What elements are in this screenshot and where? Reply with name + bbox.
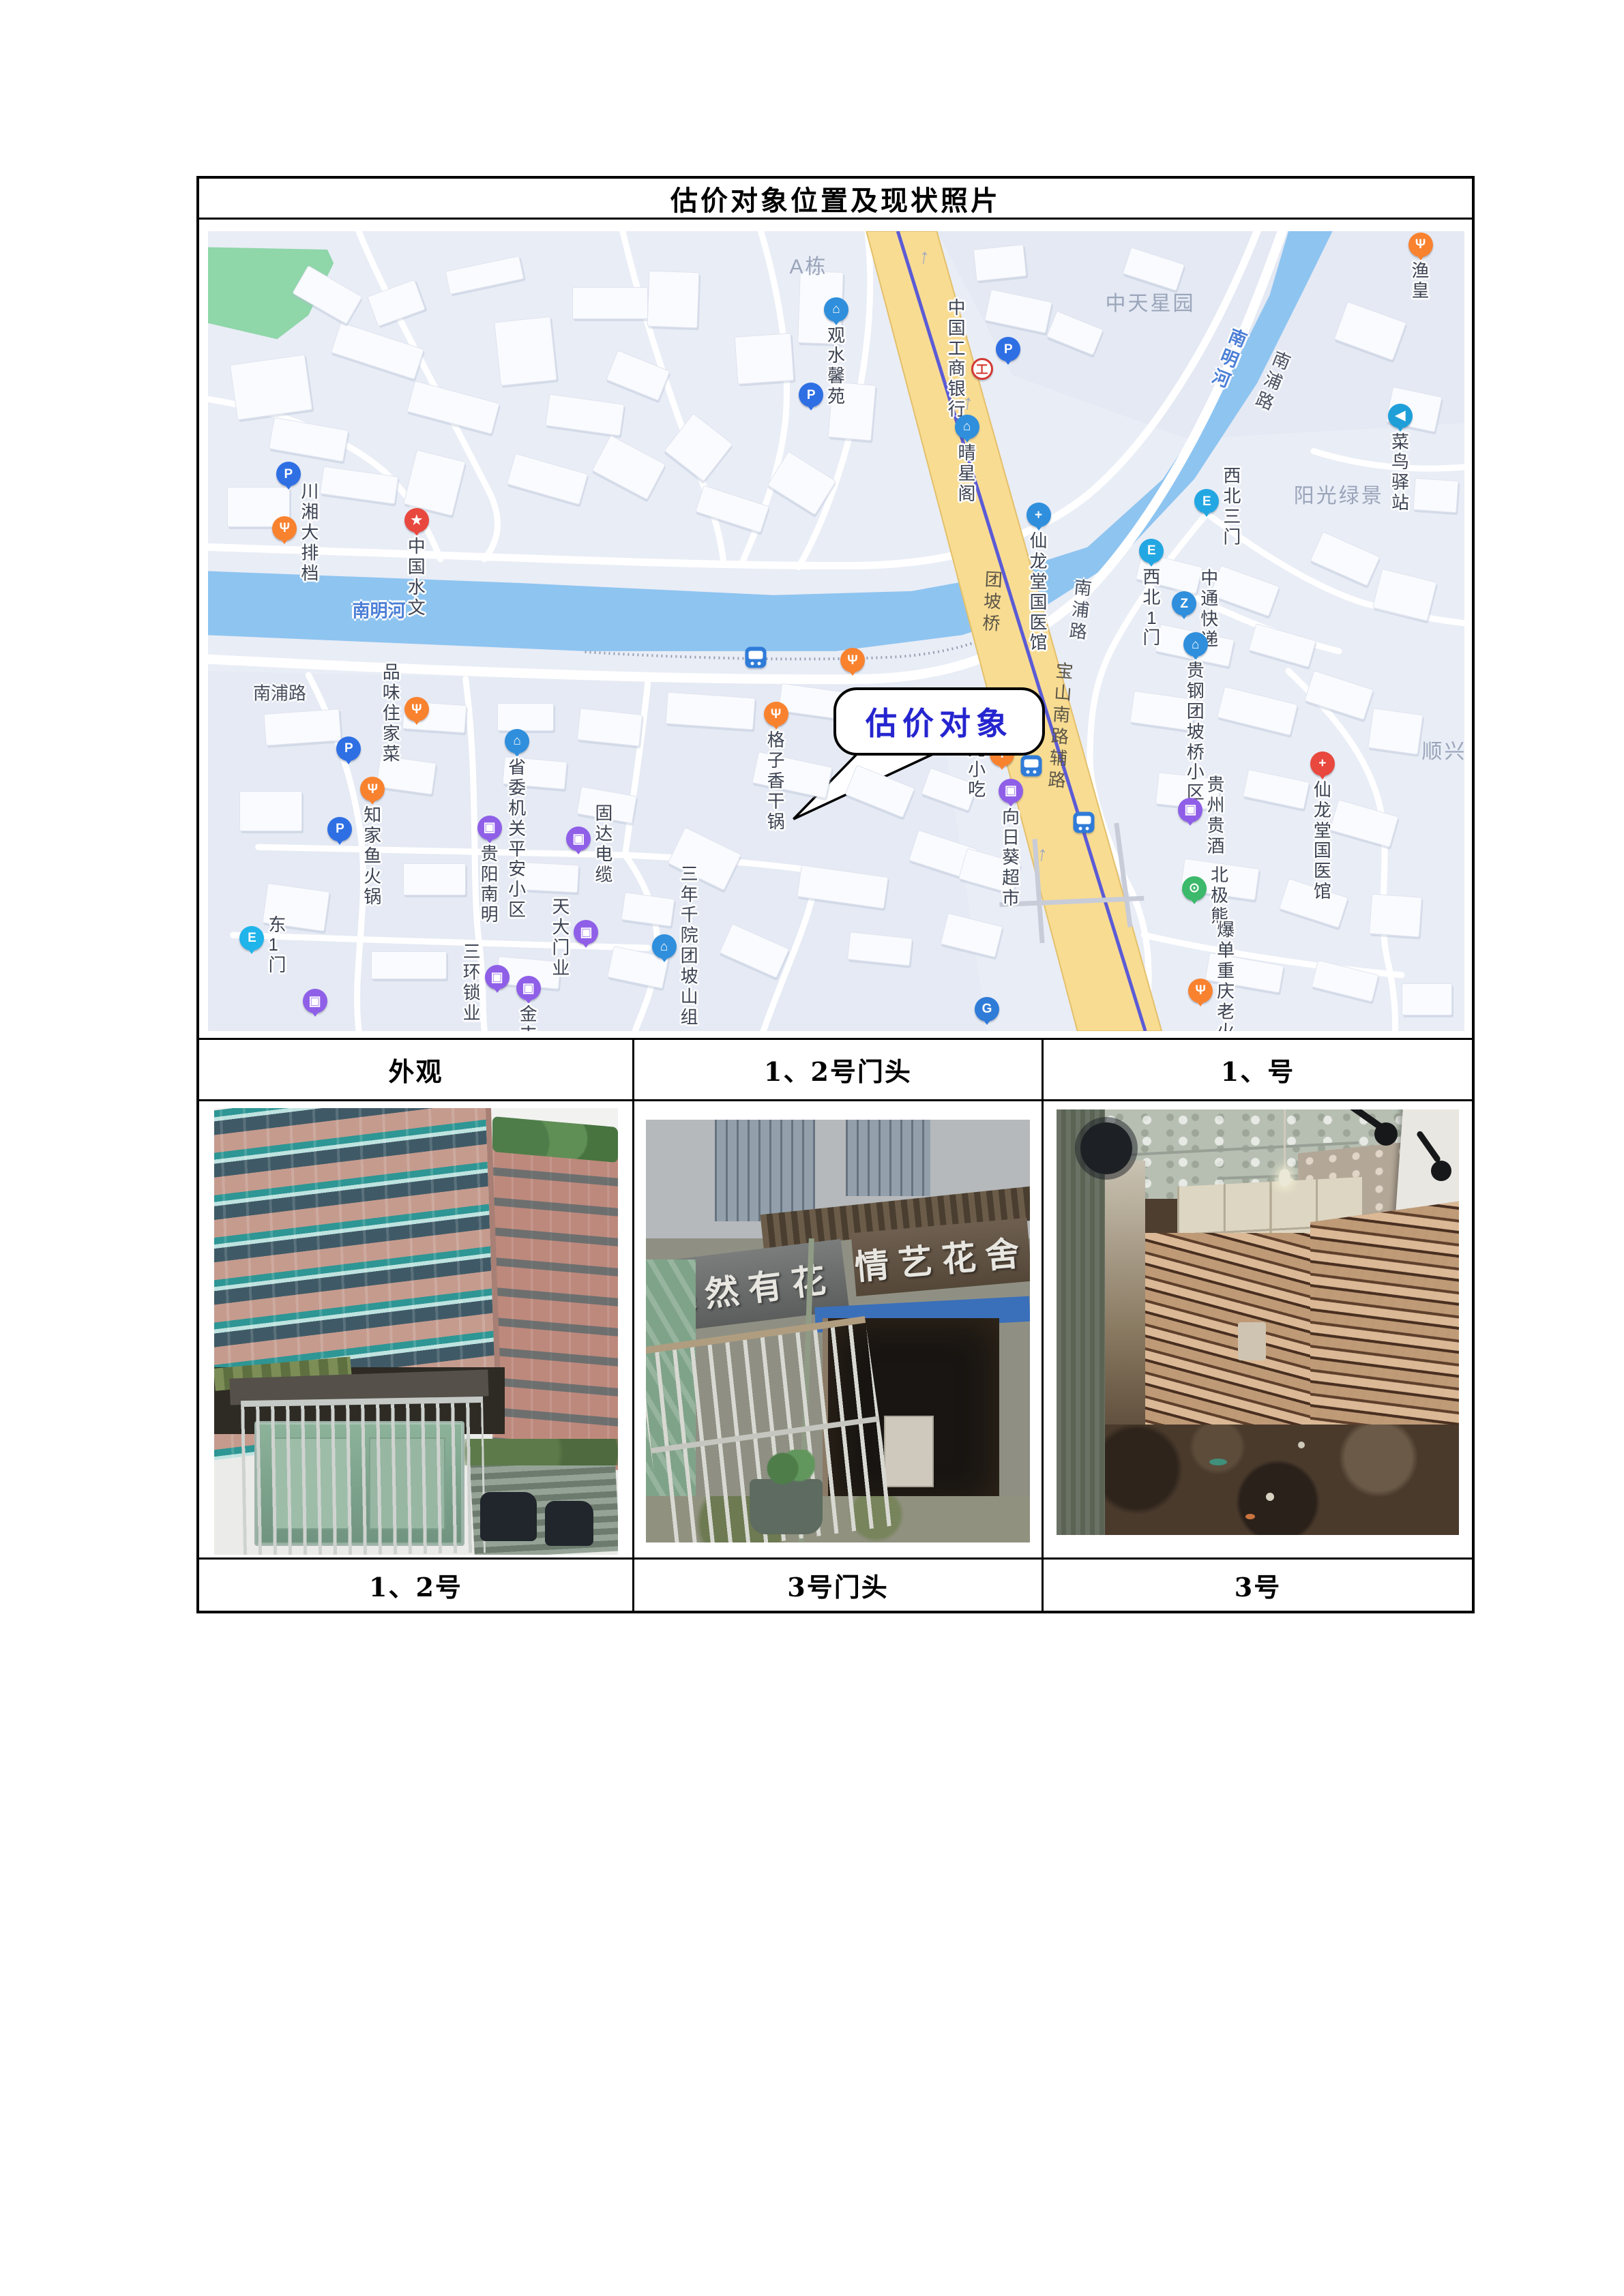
corner-wall [1105,1161,1145,1442]
dirty-floor [1057,1425,1459,1535]
marker-tail [1185,818,1196,831]
marker-tail [334,837,345,850]
marker-tail [573,847,584,860]
map-building [497,703,554,731]
building-right [492,1137,618,1472]
bus-stop-icon [1073,811,1094,833]
map-building [263,709,341,746]
caption-no12: 1、2号 [199,1560,634,1611]
marker-tail [1201,509,1212,522]
marker-tail [981,1017,992,1030]
photo-cell-interior [1044,1101,1472,1557]
map-building [239,791,302,831]
marker-tail [492,985,503,998]
header-row: 外观 1、2号门头 1、号 [199,1038,1472,1099]
map-building [1413,477,1460,512]
map-building [230,354,312,420]
header-exterior: 外观 [199,1040,634,1099]
moss [464,1439,618,1465]
header-storefront-12: 1、2号门头 [634,1040,1044,1099]
map-building [1369,893,1422,937]
map: PΨ川湘大排档★中国水文⌂观水馨苑工中国工商银行PP⌂晴星阁+仙龙堂国医馆Ψ渔皇… [208,231,1464,1031]
map-building [494,316,557,386]
marker-tail [411,717,422,730]
poi-label: 贵钢团坡桥小区 [1187,661,1205,803]
poi-label: 东1门 [268,915,286,976]
road-label: 南浦路 [253,679,306,704]
poi-label: 仙龙堂国医馆 [1314,780,1331,902]
debris [1209,1459,1227,1465]
map-building [1402,983,1452,1015]
marker-tail [1003,357,1014,370]
marker-tail [847,668,858,681]
marker-tail [996,762,1007,775]
map-cell: PΨ川湘大排档★中国水文⌂观水馨苑工中国工商银行PP⌂晴星阁+仙龙堂国医馆Ψ渔皇… [199,220,1472,1038]
caption-no3-storefront: 3号门头 [634,1560,1044,1611]
marker-tail [343,757,354,770]
metal-fence [241,1397,486,1555]
map-building [572,287,648,319]
photo-exterior [214,1108,618,1555]
photo-interior [1057,1109,1459,1535]
marker-tail [246,946,257,959]
map-building [577,708,643,746]
area-label: 顺兴 [1422,734,1464,764]
stone-wall-right [1310,1201,1459,1452]
photo-cell-exterior [199,1101,634,1557]
marker-tail [806,403,816,416]
poi-label: 固达电缆 [595,804,612,886]
poi-label: 天大门业 [552,897,570,979]
poi-label: 仙龙堂国医馆 [1030,531,1048,653]
marker-tail [310,1009,321,1022]
poi-label: 知家鱼火锅 [364,805,381,907]
map-building [403,863,466,895]
area-label: 阳光绿景 [1294,479,1384,509]
window-grille [715,1120,814,1221]
poi-label: 北极熊 [1211,865,1228,927]
subject-callout: 估价对象 [833,687,1044,756]
road-label: 团坡桥 [977,570,1006,637]
plant [761,1450,815,1488]
photo-storefront: 情艺花舍 果然有花 [646,1120,1030,1542]
marker-tail [580,940,591,953]
poi-label: 晴星阁 [958,443,976,505]
debris [1266,1493,1274,1501]
poi-label: 贵阳南明 [481,844,499,926]
poi-label: 中国水文 [408,537,426,618]
poi-label: 西北1门 [1142,567,1160,649]
area-label: A栋 [789,250,827,280]
poi-label: 格子香干锅 [767,730,785,832]
wall-patch [1238,1322,1266,1360]
marker-tail [1189,897,1200,910]
poi-label: 西北三门 [1223,466,1241,548]
exhaust-fan [1080,1122,1132,1174]
track-light [1431,1161,1451,1181]
bulb-cord [1284,1109,1286,1174]
marker-tail [283,482,294,495]
map-building [647,270,698,328]
poi-label: 观水馨苑 [827,326,845,408]
poi-label: 三环锁业 [463,942,481,1024]
map-building [973,245,1026,282]
bus-stop-icon [745,647,767,668]
debris [1298,1442,1305,1448]
icbc-logo-icon: 工 [971,358,993,380]
debris [1245,1514,1255,1519]
track-light [1374,1122,1398,1146]
map-building [371,951,447,979]
white-cabinet [884,1416,934,1487]
roller-shutter [1057,1109,1105,1535]
river-label: 南明河 [352,597,405,622]
scooter [545,1501,593,1546]
page-title: 估价对象位置及现状照片 [670,179,1001,218]
window-grille [846,1120,930,1196]
poi-label: 向日葵超市 [1002,807,1020,909]
poi-label: 贵州贵酒 [1207,775,1224,856]
appraisal-photo-table: 估价对象位置及现状照片 [196,176,1475,1613]
caption-no3: 3号 [1044,1560,1472,1611]
poi-label: 菜鸟驿站 [1391,432,1409,514]
photo-row: 情艺花舍 果然有花 [199,1099,1472,1557]
header-no1: 1、号 [1044,1040,1472,1099]
poi-label: 金丰门窗 [520,1004,537,1031]
photo-cell-storefront: 情艺花舍 果然有花 [634,1101,1044,1557]
poi-label: 爆单重庆老火锅 [1217,921,1235,1031]
poi-label: 品味住家菜 [383,662,400,764]
map-building [666,692,756,730]
table-title-row: 估价对象位置及现状照片 [199,179,1472,220]
poi-label: 渔皇 [1412,261,1430,302]
poi-label: 省委机关 平安小区 [508,758,526,921]
marker-tail [1179,612,1190,625]
map-building [734,333,794,385]
bus-stop-icon [1020,755,1042,776]
document-page: 估价对象位置及现状照片 [0,0,1624,2296]
poi-label: 三年千院团 坡山组 [681,865,698,1028]
area-label: 中天星园 [1106,286,1196,316]
caption-row: 1、2号 3号门头 3号 [199,1557,1472,1611]
marker-tail [279,537,290,550]
marker-tail [1195,999,1206,1012]
marker-tail [659,955,670,968]
scooter [480,1492,537,1541]
subject-callout-text: 估价对象 [866,699,1013,744]
poi-label: 川湘大排档 [301,481,319,583]
hanging-bulb [1279,1169,1290,1187]
map-building [1368,708,1423,754]
